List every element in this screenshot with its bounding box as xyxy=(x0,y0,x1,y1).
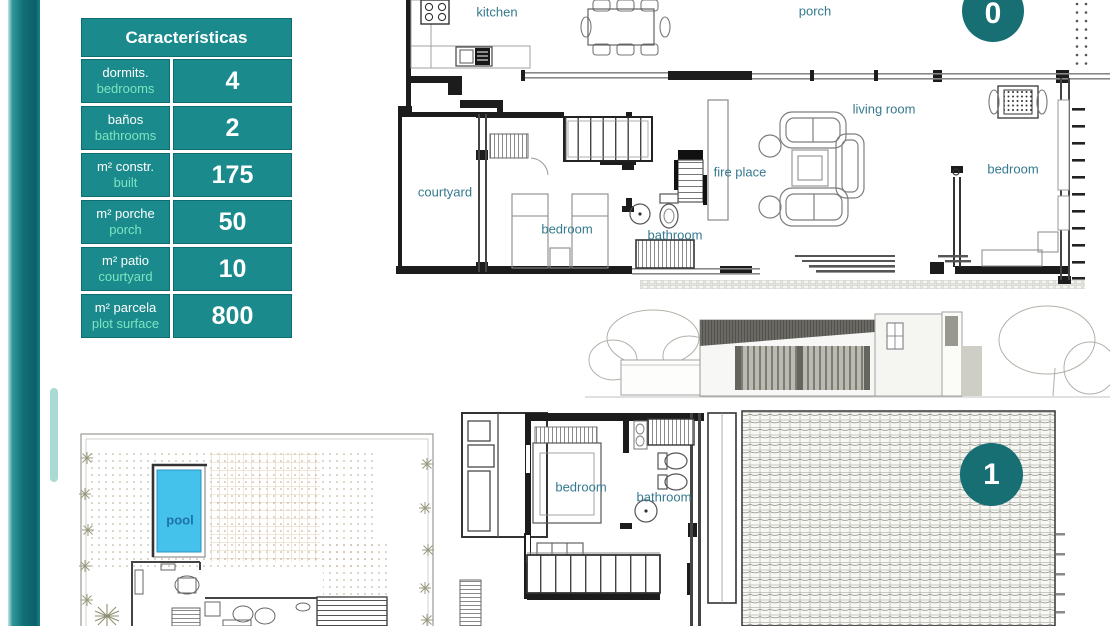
elevation-sketch xyxy=(585,298,1110,408)
table-row: m² patiocourtyard 10 xyxy=(81,247,292,291)
row-label-en: built xyxy=(82,175,169,191)
label-bedroom-center: bedroom xyxy=(541,222,592,237)
label-courtyard: courtyard xyxy=(418,185,472,200)
row-label-es: m² constr. xyxy=(82,159,169,175)
accent-pill xyxy=(50,388,58,482)
row-label-en: bathrooms xyxy=(82,128,169,144)
label-bedroom-right: bedroom xyxy=(987,162,1038,177)
row-value: 175 xyxy=(173,153,292,197)
label-fire-place: fire place xyxy=(714,165,767,180)
table-title: Características xyxy=(81,18,292,57)
label-porch: porch xyxy=(799,4,832,19)
row-label-en: porch xyxy=(82,222,169,238)
row-value: 50 xyxy=(173,200,292,244)
label-living-room: living room xyxy=(853,102,916,117)
ground-floor-plan xyxy=(390,0,1110,300)
table-row: m² parcelaplot surface 800 xyxy=(81,294,292,338)
plan-sheet: Características dormits.bedrooms 4 baños… xyxy=(0,0,1110,626)
label-bedroom-1: bedroom xyxy=(555,480,606,495)
row-label-es: m² porche xyxy=(82,206,169,222)
row-label-es: m² parcela xyxy=(82,300,169,316)
row-value: 2 xyxy=(173,106,292,150)
characteristics-table: Características dormits.bedrooms 4 baños… xyxy=(81,18,292,341)
row-label-es: baños xyxy=(82,112,169,128)
row-label-en: plot surface xyxy=(82,316,169,332)
row-value: 10 xyxy=(173,247,292,291)
row-label-es: dormits. xyxy=(82,65,169,81)
row-label-en: courtyard xyxy=(82,269,169,285)
row-label-en: bedrooms xyxy=(82,81,169,97)
left-accent-bar xyxy=(8,0,40,626)
label-pool: pool xyxy=(166,513,193,528)
table-row: m² porcheporch 50 xyxy=(81,200,292,244)
label-kitchen: kitchen xyxy=(476,5,517,20)
table-row: bañosbathrooms 2 xyxy=(81,106,292,150)
row-value: 800 xyxy=(173,294,292,338)
site-plan xyxy=(75,430,440,626)
floor-1-badge: 1 xyxy=(960,443,1023,506)
table-row: m² constr.built 175 xyxy=(81,153,292,197)
table-row: dormits.bedrooms 4 xyxy=(81,59,292,103)
first-floor-plan xyxy=(420,405,1065,626)
label-bathroom-1: bathroom xyxy=(637,490,692,505)
row-value: 4 xyxy=(173,59,292,103)
row-label-es: m² patio xyxy=(82,253,169,269)
label-bathroom-0: bathroom xyxy=(648,228,703,243)
